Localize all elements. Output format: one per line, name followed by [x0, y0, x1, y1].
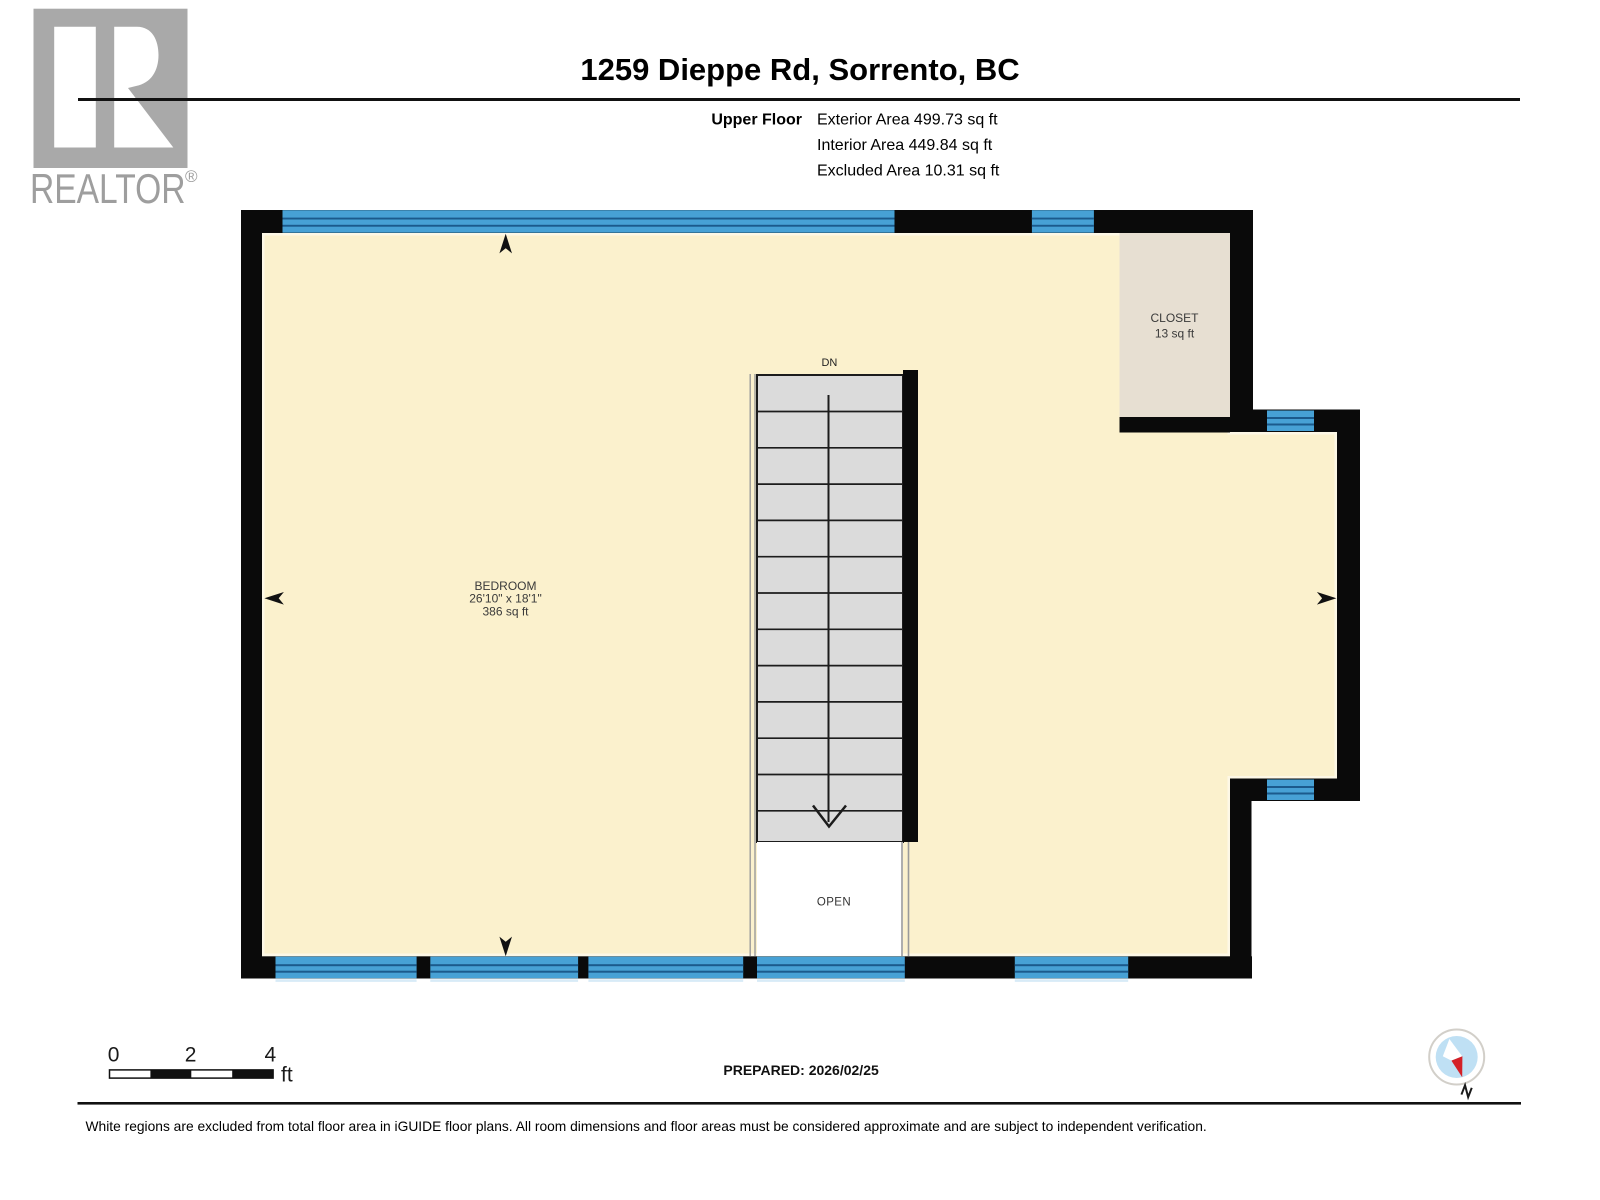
svg-text:CLOSET: CLOSET [1150, 311, 1199, 325]
svg-text:OPEN: OPEN [817, 897, 851, 909]
svg-text:Interior Area 449.84 sq ft: Interior Area 449.84 sq ft [817, 137, 993, 154]
svg-text:Upper Floor: Upper Floor [711, 112, 802, 129]
svg-text:REALTOR: REALTOR [30, 167, 186, 213]
svg-text:Exterior Area 499.73 sq ft: Exterior Area 499.73 sq ft [817, 112, 998, 129]
svg-text:White regions are excluded fro: White regions are excluded from total fl… [86, 1119, 1207, 1134]
svg-text:PREPARED: 2026/02/25: PREPARED: 2026/02/25 [723, 1062, 879, 1078]
svg-text:1259 Dieppe Rd, Sorrento, BC: 1259 Dieppe Rd, Sorrento, BC [580, 52, 1019, 87]
svg-text:Excluded Area 10.31 sq ft: Excluded Area 10.31 sq ft [817, 163, 1000, 180]
svg-text:ft: ft [281, 1064, 293, 1087]
svg-text:26'10" x 18'1": 26'10" x 18'1" [469, 592, 542, 606]
svg-text:0: 0 [108, 1044, 120, 1067]
svg-text:DN: DN [821, 357, 837, 369]
svg-text:386 sq ft: 386 sq ft [482, 605, 529, 619]
svg-text:13 sq ft: 13 sq ft [1155, 327, 1195, 341]
svg-text:BEDROOM: BEDROOM [474, 579, 536, 593]
svg-text:®: ® [185, 167, 198, 186]
svg-text:2: 2 [185, 1044, 197, 1067]
svg-text:4: 4 [265, 1044, 277, 1067]
